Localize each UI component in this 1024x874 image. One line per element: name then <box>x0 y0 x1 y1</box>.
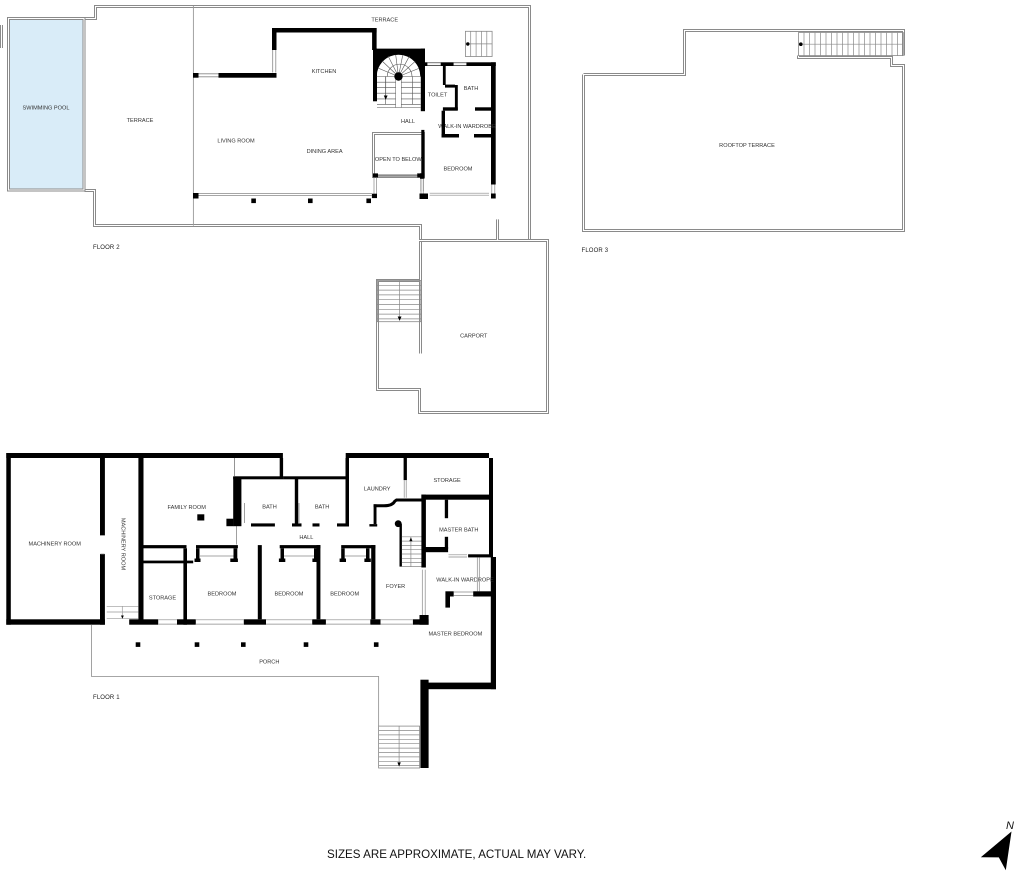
svg-text:HALL: HALL <box>401 119 415 125</box>
svg-text:FLOOR 3: FLOOR 3 <box>582 248 609 254</box>
svg-text:MASTER BEDROOM: MASTER BEDROOM <box>429 632 483 638</box>
svg-text:BEDROOM: BEDROOM <box>208 592 237 598</box>
svg-text:MACHINERY ROOM: MACHINERY ROOM <box>120 518 126 571</box>
svg-text:LAUNDRY: LAUNDRY <box>364 487 391 493</box>
svg-text:FAMILY ROOM: FAMILY ROOM <box>168 505 207 511</box>
svg-text:PORCH: PORCH <box>259 660 279 666</box>
svg-text:CARPORT: CARPORT <box>460 334 488 340</box>
svg-text:STORAGE: STORAGE <box>433 478 461 484</box>
svg-text:BATH: BATH <box>262 505 277 511</box>
svg-text:MACHINERY ROOM: MACHINERY ROOM <box>29 542 82 548</box>
svg-text:KITCHEN: KITCHEN <box>312 69 337 75</box>
svg-text:TERRACE: TERRACE <box>371 18 398 24</box>
svg-text:HALL: HALL <box>299 535 313 541</box>
svg-text:LIVING ROOM: LIVING ROOM <box>217 139 255 145</box>
svg-text:SWIMMING POOL: SWIMMING POOL <box>23 106 70 112</box>
svg-text:FLOOR 2: FLOOR 2 <box>93 245 120 251</box>
svg-text:FLOOR 1: FLOOR 1 <box>93 695 120 701</box>
svg-text:TERRACE: TERRACE <box>127 118 154 124</box>
svg-text:SIZES ARE APPROXIMATE, ACTUAL: SIZES ARE APPROXIMATE, ACTUAL MAY VARY. <box>327 848 586 861</box>
svg-text:WALK-IN WARDROPE: WALK-IN WARDROPE <box>436 578 494 584</box>
svg-text:STORAGE: STORAGE <box>149 596 177 602</box>
svg-text:WALK-IN WARDROBE: WALK-IN WARDROBE <box>438 124 496 130</box>
svg-text:N: N <box>1006 820 1014 832</box>
svg-text:BATH: BATH <box>315 505 330 511</box>
svg-text:OPEN TO BELOW: OPEN TO BELOW <box>375 157 422 163</box>
svg-text:BEDROOM: BEDROOM <box>330 592 359 598</box>
svg-text:MASTER BATH: MASTER BATH <box>439 528 478 534</box>
svg-text:BEDROOM: BEDROOM <box>444 167 473 173</box>
svg-text:FOYER: FOYER <box>386 584 405 590</box>
svg-text:TOILET: TOILET <box>428 92 448 98</box>
svg-text:DINING AREA: DINING AREA <box>307 149 343 155</box>
svg-text:BATH: BATH <box>464 86 479 92</box>
svg-text:BEDROOM: BEDROOM <box>275 592 304 598</box>
svg-text:ROOFTOP TERRACE: ROOFTOP TERRACE <box>719 143 775 149</box>
